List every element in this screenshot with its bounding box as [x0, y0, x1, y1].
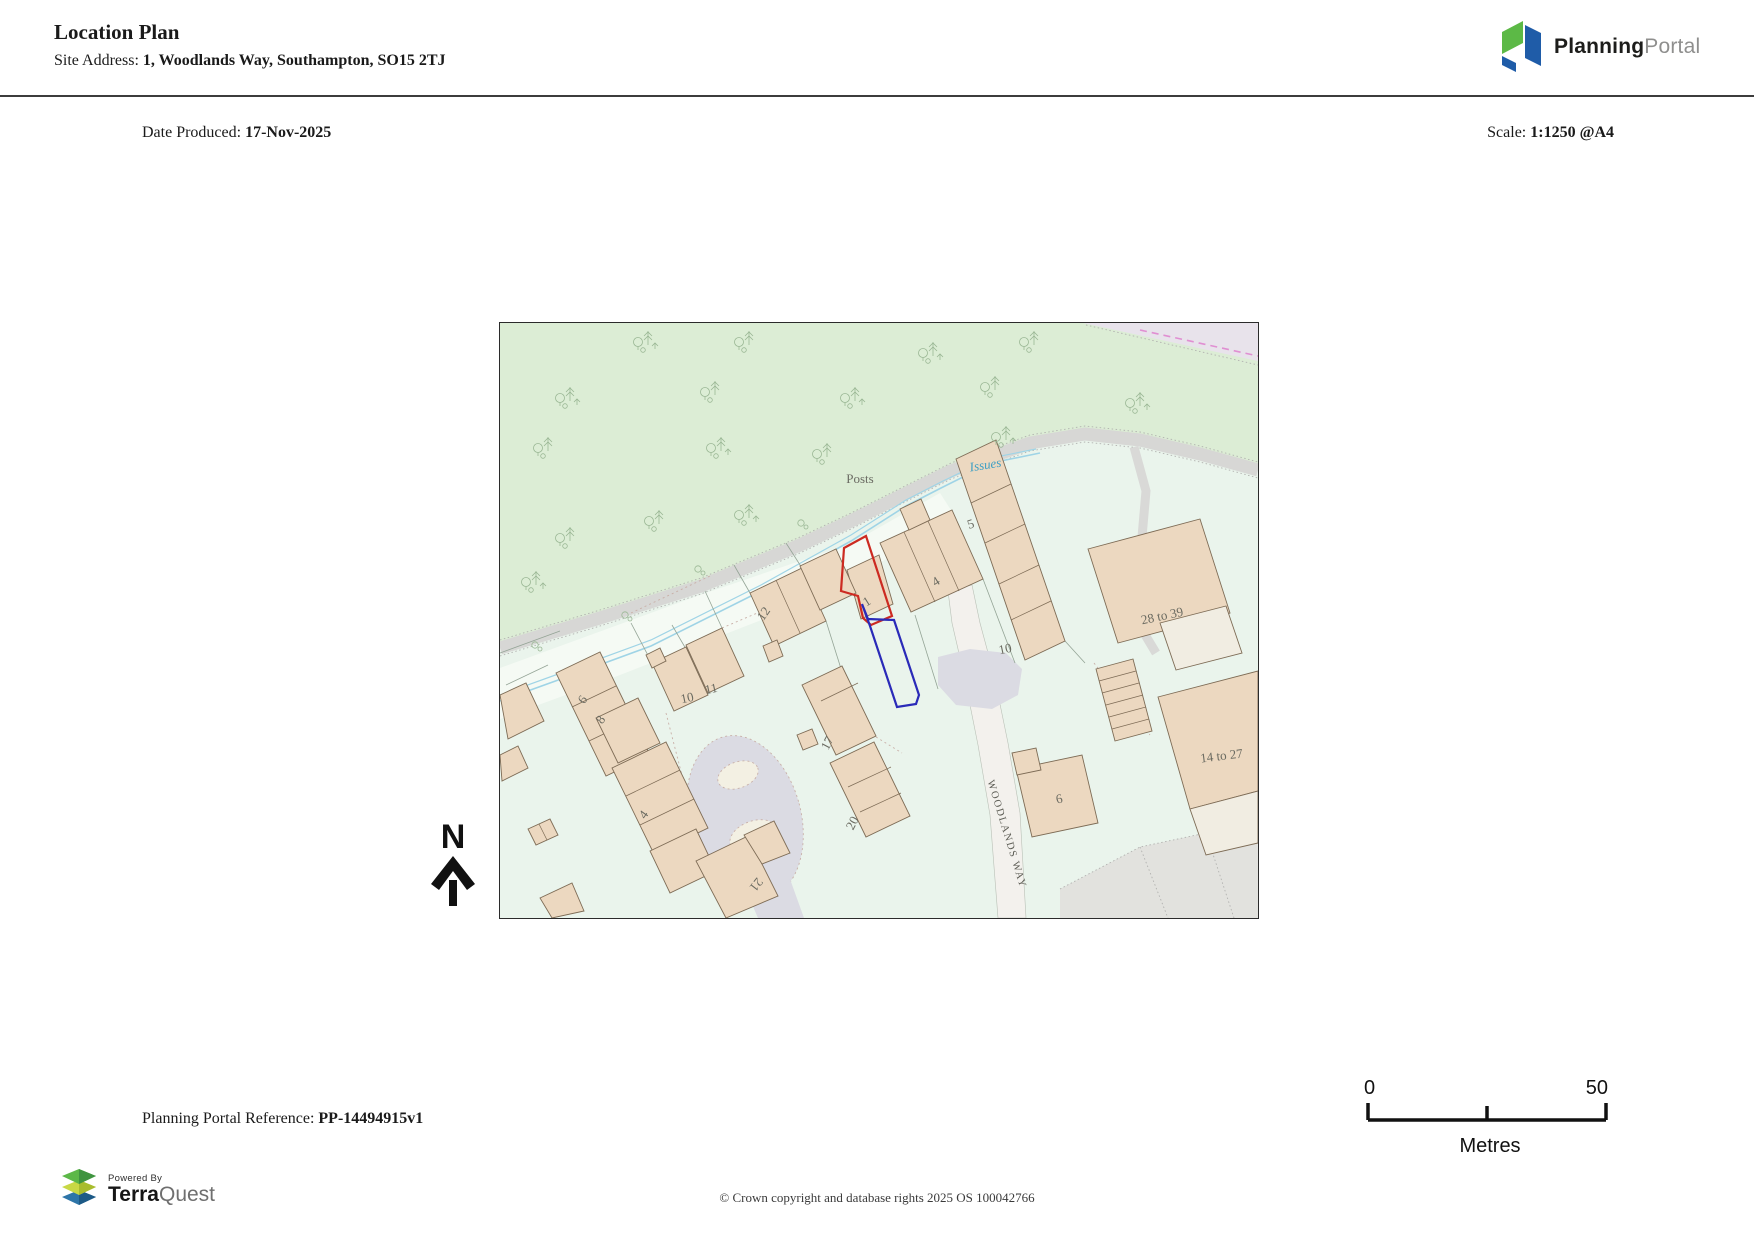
- north-label: N: [426, 820, 480, 854]
- svg-text:Posts: Posts: [846, 471, 873, 486]
- planning-portal-reference: Planning Portal Reference: PP-14494915v1: [142, 1110, 423, 1128]
- location-plan-page: Location Plan Site Address: 1, Woodlands…: [0, 0, 1754, 1241]
- copyright-notice: © Crown copyright and database rights 20…: [0, 1190, 1754, 1206]
- scale-note: Scale: 1:1250 @A4: [1487, 124, 1614, 142]
- site-address-line: Site Address: 1, Woodlands Way, Southamp…: [54, 52, 446, 70]
- scale-bar-start: 0: [1364, 1077, 1375, 1099]
- planning-portal-logo: PlanningPortal: [1500, 16, 1700, 77]
- planning-portal-logo-text: PlanningPortal: [1554, 35, 1700, 59]
- location-plan-map: PostsIssues54110121011684172021628 to 39…: [499, 322, 1259, 919]
- north-indicator: N: [426, 820, 480, 913]
- page-title: Location Plan: [54, 20, 179, 45]
- site-address-label: Site Address:: [54, 52, 143, 69]
- planning-portal-logo-icon: [1500, 16, 1544, 77]
- date-produced: Date Produced: 17-Nov-2025: [142, 124, 331, 142]
- scale-bar-end: 50: [1586, 1077, 1608, 1099]
- scale-bar-unit: Metres: [1358, 1135, 1622, 1158]
- north-arrow-icon: [428, 854, 478, 908]
- header-divider: [0, 95, 1754, 97]
- scale-bar: 0 50 Metres: [1358, 1076, 1622, 1158]
- site-address-value: 1, Woodlands Way, Southampton, SO15 2TJ: [143, 52, 446, 69]
